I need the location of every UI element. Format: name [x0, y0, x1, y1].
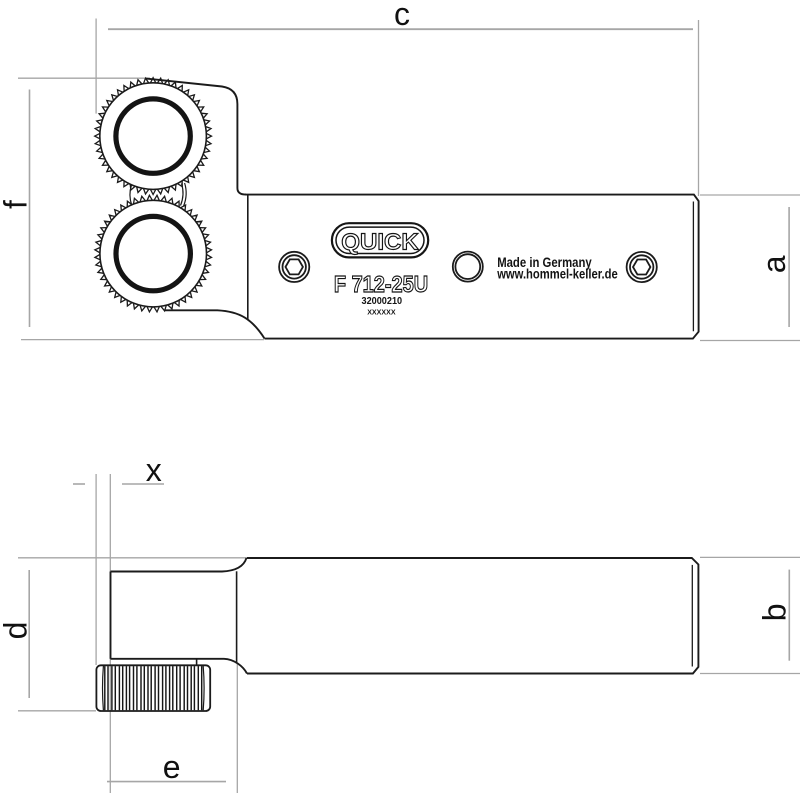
svg-text:x: x — [146, 452, 162, 488]
svg-text:e: e — [163, 749, 181, 785]
svg-text:QUICK: QUICK — [341, 228, 419, 254]
svg-text:b: b — [757, 604, 793, 622]
svg-text:F 712-25U: F 712-25U — [334, 271, 428, 297]
svg-text:XXXXXX: XXXXXX — [367, 308, 395, 317]
svg-text:c: c — [394, 0, 410, 32]
svg-text:a: a — [756, 255, 792, 273]
svg-text:32000210: 32000210 — [362, 295, 403, 307]
svg-text:www.hommel-keller.de: www.hommel-keller.de — [496, 267, 618, 282]
svg-text:d: d — [0, 622, 33, 640]
svg-text:f: f — [0, 200, 34, 209]
